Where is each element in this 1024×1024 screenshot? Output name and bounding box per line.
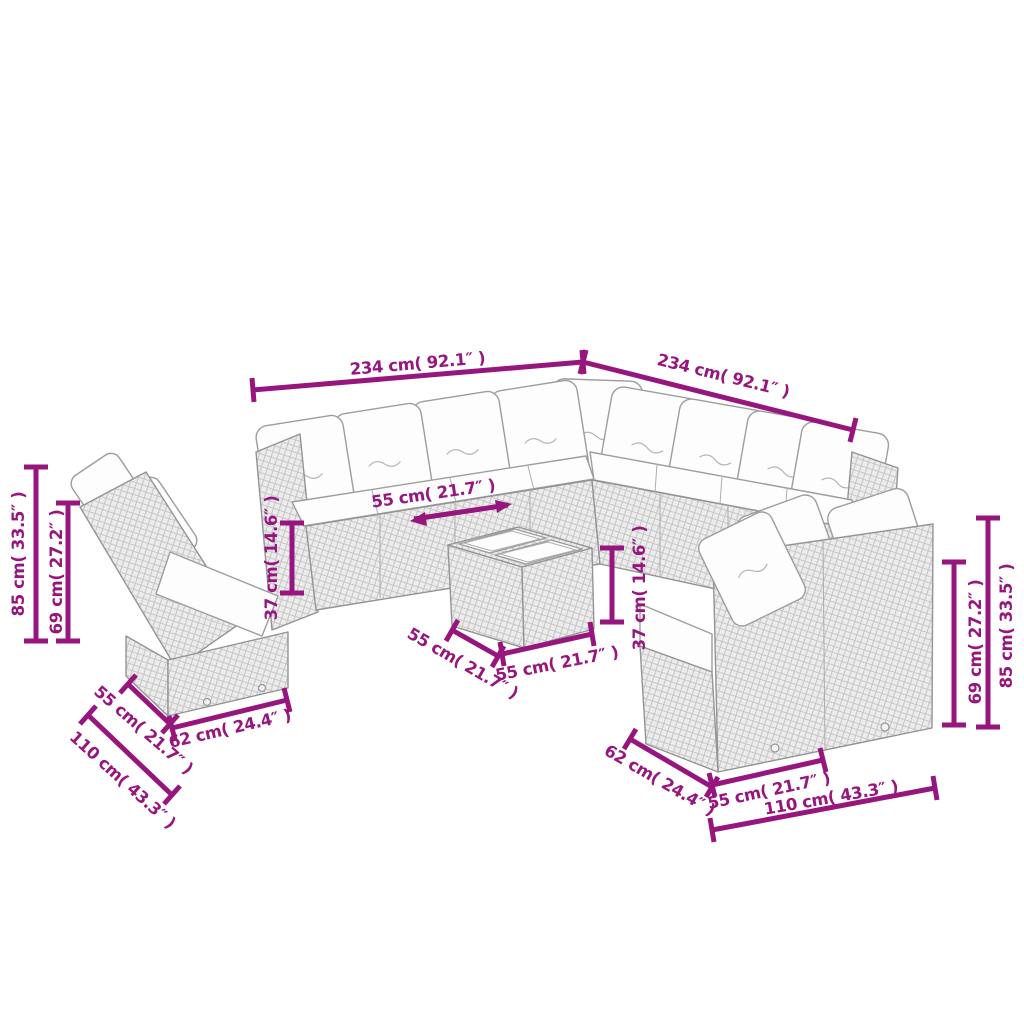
- dimension-label: 85 cm( 33.5″ ): [997, 564, 1016, 689]
- dimension-label: 55 cm( 21.7″ ): [494, 642, 620, 684]
- dim-left-total-height: 85 cm( 33.5″ ): [9, 467, 48, 641]
- dimension-label: 69 cm( 27.2″ ): [47, 510, 66, 635]
- left-sofa-back-panel: [80, 472, 242, 668]
- dimension-label: 234 cm( 92.1″ ): [655, 350, 791, 401]
- garden-sofa-set-line-drawing: 234 cm( 92.1″ ) 234 cm( 92.1″ ) 85 cm( 3…: [0, 0, 1024, 1024]
- left-sofa-foot: [259, 685, 266, 692]
- dim-right-back-height: 69 cm( 27.2″ ): [942, 562, 985, 725]
- left-sofa-foot: [204, 699, 211, 706]
- dim-left-back-height: 69 cm( 27.2″ ): [47, 503, 80, 641]
- dimension-line: [942, 562, 966, 725]
- left-sofa-drawing: [67, 450, 288, 716]
- dimension-label: 69 cm( 27.2″ ): [966, 580, 985, 705]
- right-sofa-foot: [881, 723, 889, 731]
- right-sofa-foot: [771, 744, 779, 752]
- dimension-label: 37 cm( 14.6″ ): [262, 496, 281, 621]
- dimension-label: 37 cm( 14.6″ ): [630, 526, 649, 651]
- dim-left-sofa-width: 110 cm( 43.3″ ): [66, 706, 180, 832]
- coffee-table-drawing: [448, 527, 594, 648]
- dimension-label: 85 cm( 33.5″ ): [9, 492, 28, 617]
- product-dimension-diagram: 234 cm( 92.1″ ) 234 cm( 92.1″ ) 85 cm( 3…: [0, 0, 1024, 1024]
